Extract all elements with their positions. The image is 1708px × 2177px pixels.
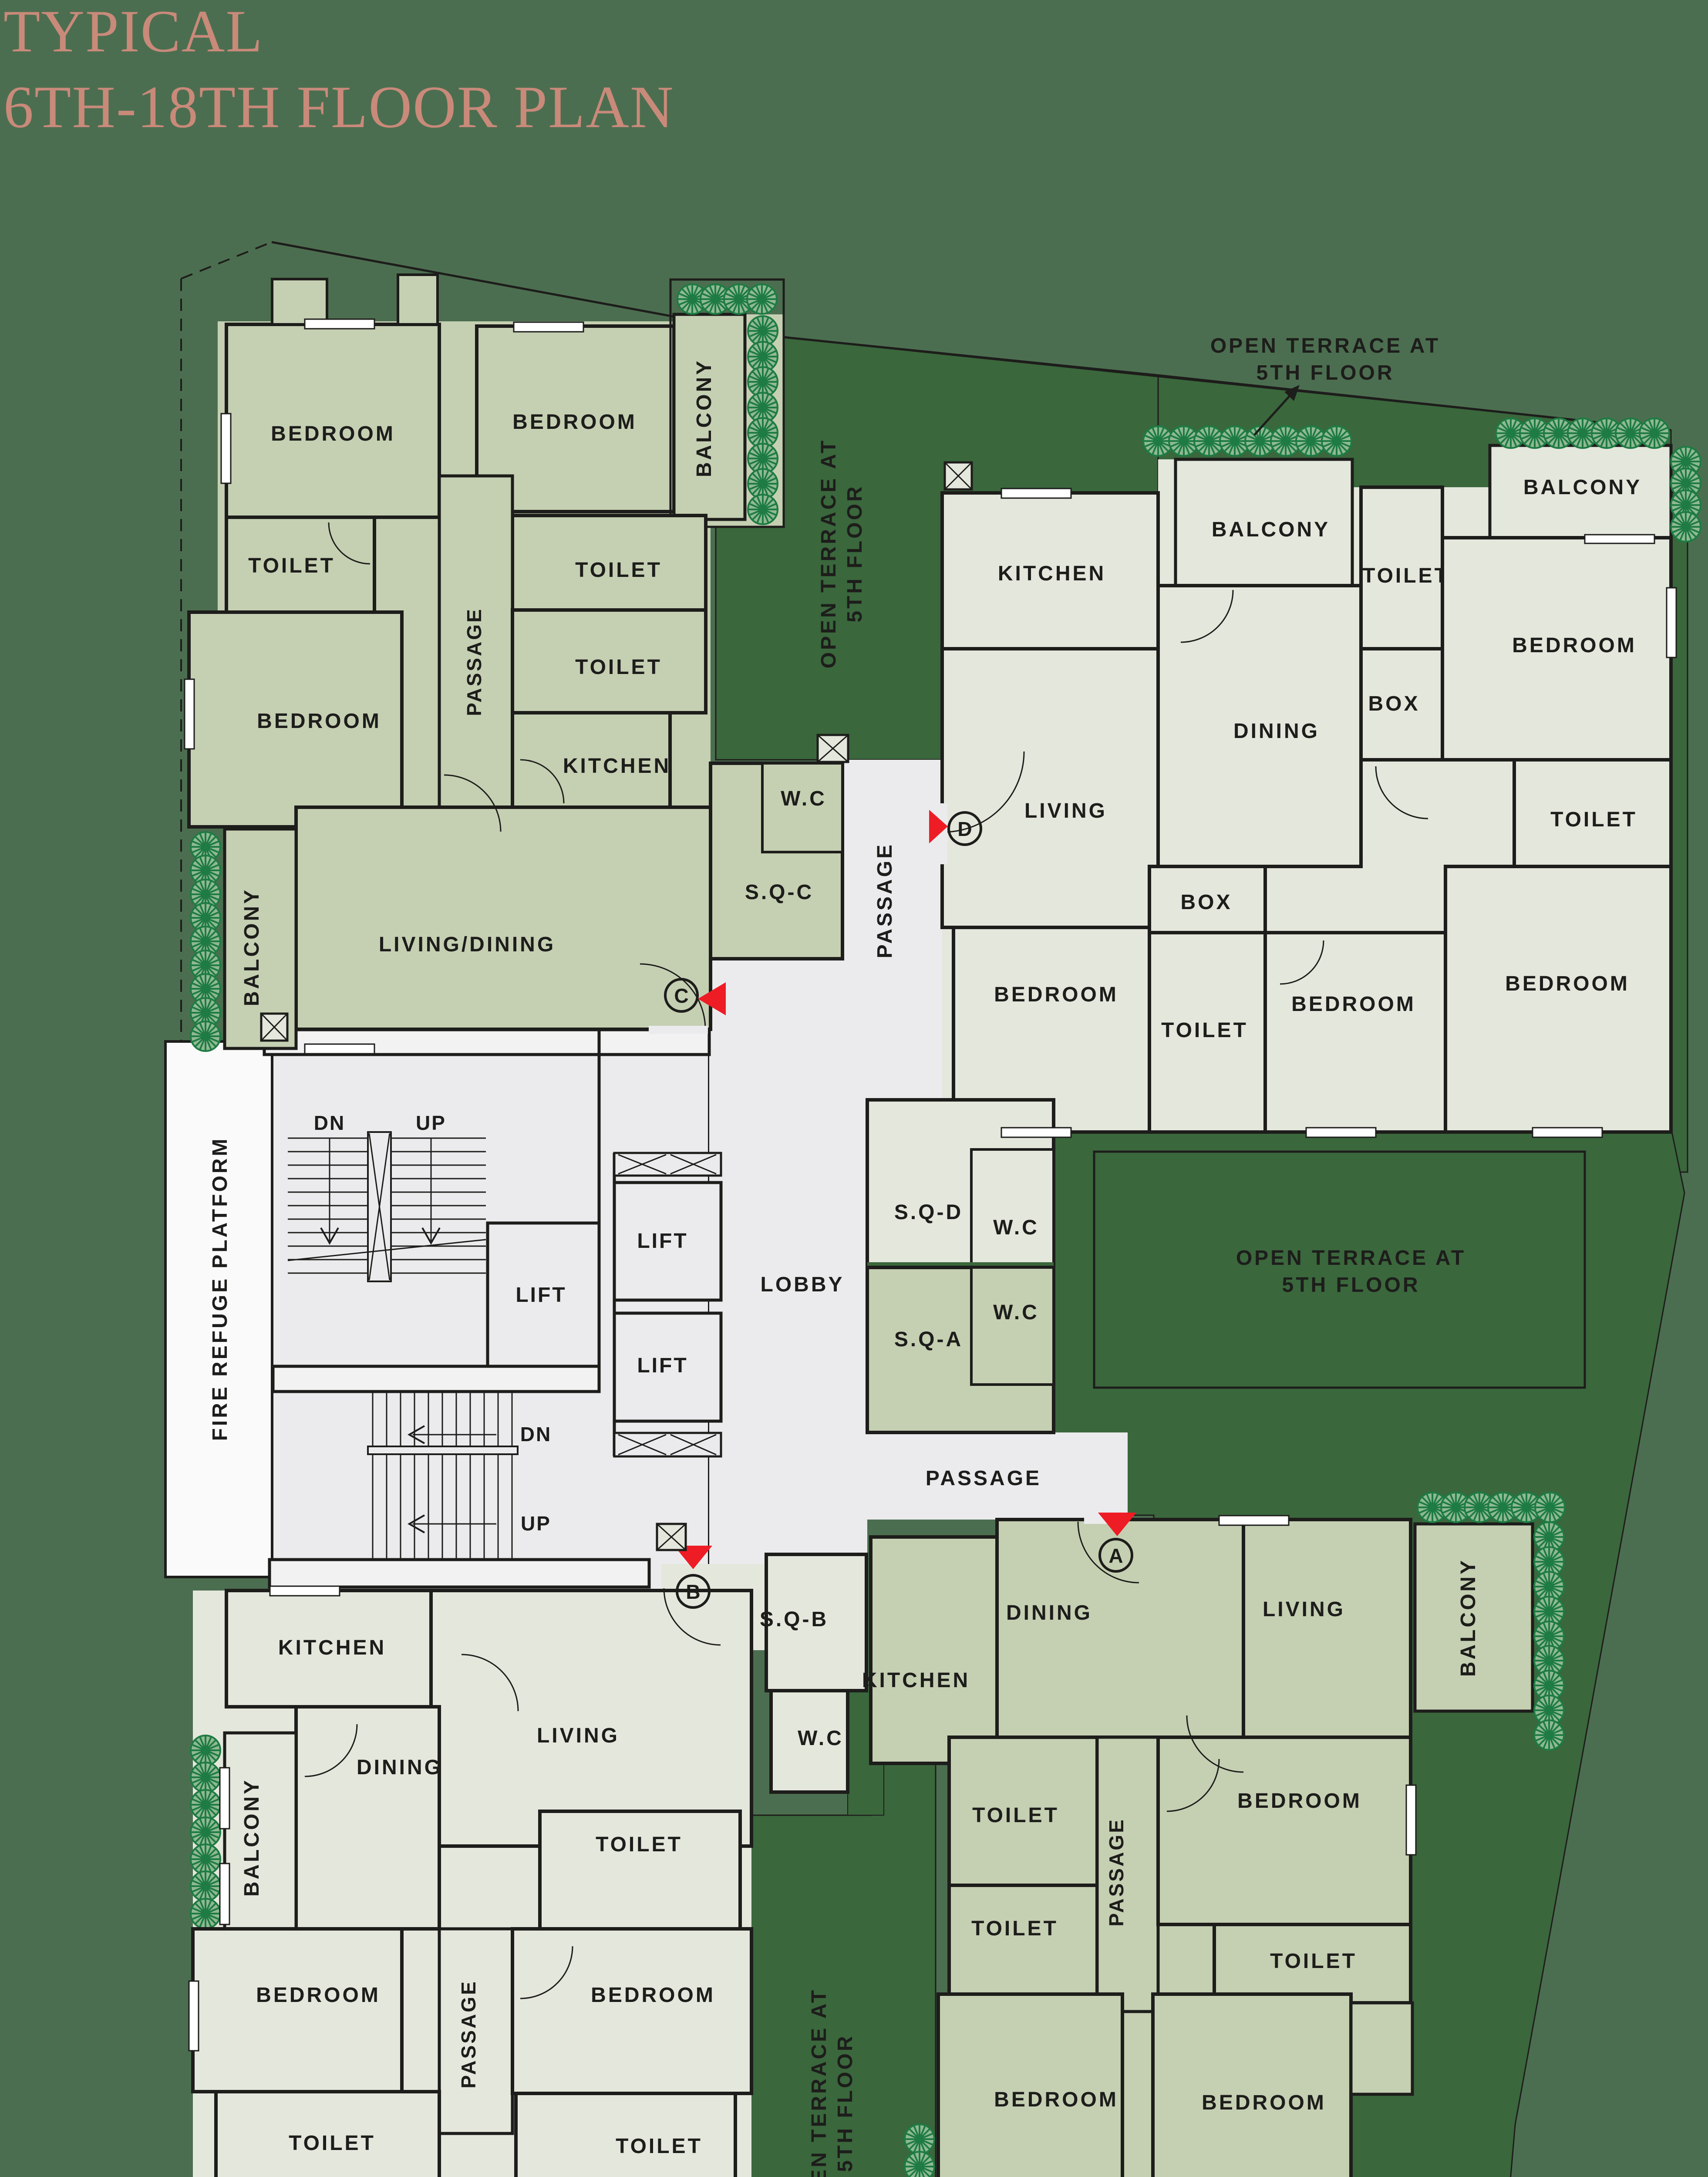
svg-text:W.C: W.C xyxy=(993,1216,1039,1239)
svg-text:BEDROOM: BEDROOM xyxy=(257,710,381,733)
svg-text:TYPICAL: TYPICAL xyxy=(3,0,263,64)
svg-text:BOX: BOX xyxy=(1180,891,1232,914)
svg-text:LIVING/DINING: LIVING/DINING xyxy=(379,933,556,956)
svg-text:DN: DN xyxy=(314,1112,345,1134)
svg-text:5TH FLOOR: 5TH FLOOR xyxy=(834,2034,857,2172)
svg-text:TOILET: TOILET xyxy=(1161,1019,1248,1042)
svg-text:LOBBY: LOBBY xyxy=(761,1273,845,1296)
svg-text:S.Q-D: S.Q-D xyxy=(894,1201,963,1224)
svg-text:PASSAGE: PASSAGE xyxy=(457,1980,480,2089)
svg-text:5TH FLOOR: 5TH FLOOR xyxy=(1257,361,1395,384)
svg-text:PASSAGE: PASSAGE xyxy=(1105,1818,1128,1927)
svg-text:LIVING: LIVING xyxy=(1263,1598,1345,1621)
svg-text:TOILET: TOILET xyxy=(575,656,662,679)
svg-text:OPEN TERRACE AT: OPEN TERRACE AT xyxy=(817,438,840,668)
svg-text:BEDROOM: BEDROOM xyxy=(1505,972,1630,995)
svg-text:LIFT: LIFT xyxy=(637,1230,688,1253)
svg-text:A: A xyxy=(1108,1544,1123,1567)
svg-text:OPEN TERRACE AT: OPEN TERRACE AT xyxy=(808,1988,831,2177)
svg-text:S.Q-A: S.Q-A xyxy=(894,1328,963,1351)
svg-text:W.C: W.C xyxy=(993,1301,1039,1324)
svg-text:DN: DN xyxy=(520,1423,552,1446)
svg-text:5TH FLOOR: 5TH FLOOR xyxy=(1282,1274,1420,1297)
svg-text:BEDROOM: BEDROOM xyxy=(1202,2091,1326,2114)
svg-text:TOILET: TOILET xyxy=(1550,808,1637,831)
svg-text:FIRE REFUGE PLATFORM: FIRE REFUGE PLATFORM xyxy=(209,1136,232,1441)
svg-text:TOILET: TOILET xyxy=(248,554,335,577)
svg-text:S.Q-B: S.Q-B xyxy=(760,1608,829,1631)
svg-text:PASSAGE: PASSAGE xyxy=(926,1467,1041,1490)
svg-text:KITCHEN: KITCHEN xyxy=(278,1636,386,1659)
svg-text:TOILET: TOILET xyxy=(1362,564,1449,587)
svg-text:C: C xyxy=(674,984,688,1007)
svg-text:OPEN TERRACE AT: OPEN TERRACE AT xyxy=(1210,334,1440,357)
svg-text:PASSAGE: PASSAGE xyxy=(463,607,485,716)
svg-text:KITCHEN: KITCHEN xyxy=(862,1669,970,1692)
svg-text:BEDROOM: BEDROOM xyxy=(512,411,637,434)
svg-text:BALCONY: BALCONY xyxy=(1457,1558,1480,1677)
svg-text:DINING: DINING xyxy=(1006,1601,1092,1624)
svg-text:UP: UP xyxy=(416,1112,446,1134)
svg-text:TOILET: TOILET xyxy=(575,559,662,582)
svg-text:BEDROOM: BEDROOM xyxy=(256,1984,381,2007)
svg-text:LIVING: LIVING xyxy=(537,1724,620,1747)
svg-text:TOILET: TOILET xyxy=(616,2135,703,2158)
svg-text:BALCONY: BALCONY xyxy=(693,359,716,477)
svg-text:LIFT: LIFT xyxy=(515,1284,566,1307)
svg-text:6TH-18TH FLOOR PLAN: 6TH-18TH FLOOR PLAN xyxy=(3,74,674,140)
svg-text:BALCONY: BALCONY xyxy=(1212,518,1330,541)
svg-text:TOILET: TOILET xyxy=(289,2132,376,2155)
svg-text:KITCHEN: KITCHEN xyxy=(998,562,1106,585)
svg-text:BALCONY: BALCONY xyxy=(1523,476,1642,499)
svg-text:S.Q-C: S.Q-C xyxy=(745,881,814,904)
svg-text:UP: UP xyxy=(521,1512,551,1535)
svg-text:KITCHEN: KITCHEN xyxy=(563,755,671,778)
svg-text:BEDROOM: BEDROOM xyxy=(271,422,395,445)
svg-text:TOILET: TOILET xyxy=(596,1833,683,1856)
svg-text:BALCONY: BALCONY xyxy=(240,1778,263,1897)
svg-text:BEDROOM: BEDROOM xyxy=(1291,993,1416,1016)
svg-text:5TH FLOOR: 5TH FLOOR xyxy=(843,485,866,623)
svg-text:DINING: DINING xyxy=(1233,720,1320,743)
svg-text:BEDROOM: BEDROOM xyxy=(591,1984,715,2007)
svg-text:BEDROOM: BEDROOM xyxy=(1512,634,1637,657)
svg-text:LIVING: LIVING xyxy=(1024,799,1107,822)
svg-text:TOILET: TOILET xyxy=(971,1917,1058,1940)
svg-text:BEDROOM: BEDROOM xyxy=(994,2088,1118,2111)
svg-text:LIFT: LIFT xyxy=(637,1354,688,1377)
svg-text:BOX: BOX xyxy=(1368,692,1420,715)
svg-text:BALCONY: BALCONY xyxy=(240,888,263,1006)
svg-text:DINING: DINING xyxy=(357,1756,443,1779)
svg-text:BEDROOM: BEDROOM xyxy=(1237,1789,1362,1813)
svg-text:W.C: W.C xyxy=(781,787,827,810)
svg-text:B: B xyxy=(686,1581,700,1603)
svg-text:BEDROOM: BEDROOM xyxy=(994,983,1118,1006)
svg-text:TOILET: TOILET xyxy=(972,1804,1059,1827)
svg-text:TOILET: TOILET xyxy=(1270,1950,1357,1973)
svg-text:OPEN TERRACE AT: OPEN TERRACE AT xyxy=(1236,1247,1466,1270)
svg-text:PASSAGE: PASSAGE xyxy=(873,842,896,958)
svg-text:W.C: W.C xyxy=(798,1727,844,1750)
